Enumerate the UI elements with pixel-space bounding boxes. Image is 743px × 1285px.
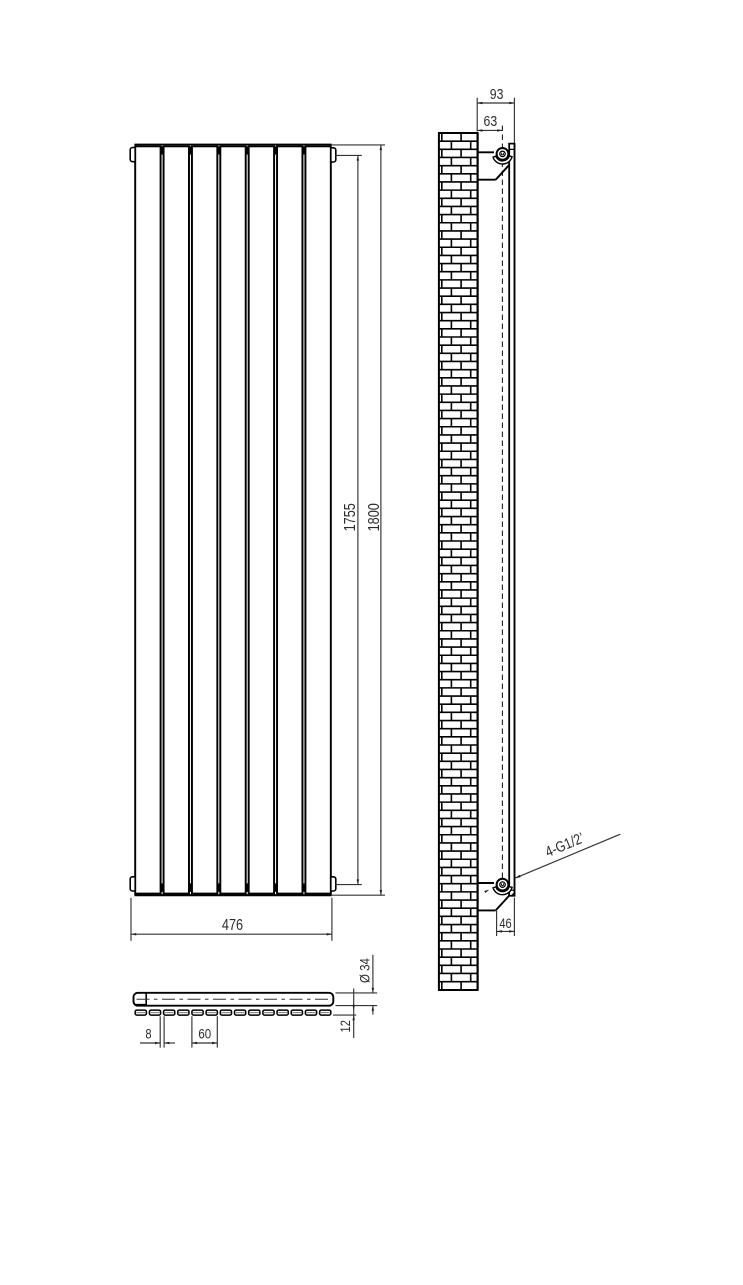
svg-text:8: 8 xyxy=(145,1026,151,1041)
svg-text:Ø 34: Ø 34 xyxy=(356,958,372,983)
svg-text:60: 60 xyxy=(198,1025,211,1041)
svg-text:46: 46 xyxy=(499,916,511,931)
svg-text:1800: 1800 xyxy=(366,503,383,531)
svg-text:12: 12 xyxy=(338,1020,353,1032)
svg-text:1755: 1755 xyxy=(342,503,359,531)
svg-text:4-G1/2’: 4-G1/2’ xyxy=(543,830,587,861)
svg-text:63: 63 xyxy=(484,113,498,129)
svg-text:93: 93 xyxy=(490,86,504,102)
svg-text:476: 476 xyxy=(222,917,243,934)
